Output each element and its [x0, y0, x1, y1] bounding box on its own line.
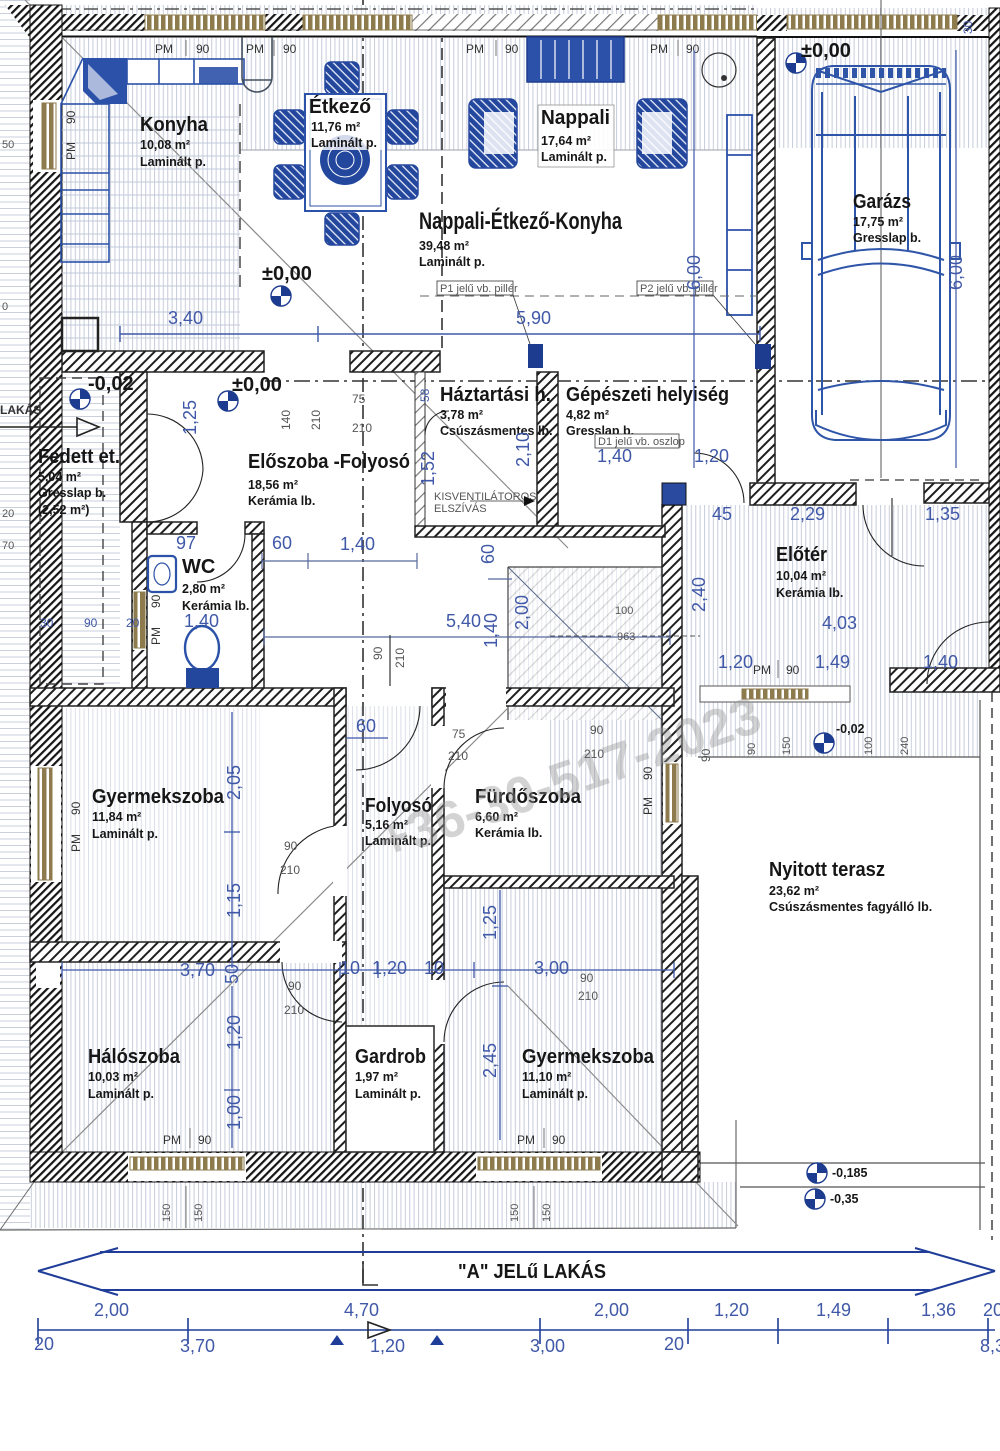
svg-text:20: 20 [664, 1334, 684, 1354]
svg-text:1,40: 1,40 [481, 613, 501, 648]
svg-text:150: 150 [509, 1204, 521, 1222]
svg-text:5,90: 5,90 [516, 308, 551, 328]
svg-text:Előszoba -Folyosó: Előszoba -Folyosó [248, 451, 410, 473]
svg-text:100: 100 [615, 605, 633, 617]
svg-text:240: 240 [899, 737, 911, 755]
svg-text:PM: PM [641, 797, 655, 815]
svg-text:97: 97 [176, 533, 196, 553]
svg-text:1,25: 1,25 [180, 400, 200, 435]
svg-text:Gardrob: Gardrob [355, 1046, 426, 1068]
svg-text:Kerámia lb.: Kerámia lb. [248, 494, 315, 508]
svg-text:90: 90 [552, 1133, 566, 1147]
svg-text:3,40: 3,40 [168, 308, 203, 328]
svg-text:Laminált p.: Laminált p. [541, 150, 607, 164]
svg-text:210: 210 [578, 989, 598, 1003]
svg-text:963: 963 [617, 631, 635, 643]
svg-text:1,40: 1,40 [184, 611, 219, 631]
svg-text:10,08 m²: 10,08 m² [140, 138, 190, 152]
svg-text:2,00: 2,00 [512, 595, 532, 630]
svg-text:±0,00: ±0,00 [262, 263, 312, 285]
svg-text:1,40: 1,40 [597, 446, 632, 466]
svg-text:3,78 m²: 3,78 m² [440, 408, 483, 422]
svg-text:90: 90 [371, 646, 385, 660]
svg-text:Laminált p.: Laminált p. [419, 255, 485, 269]
svg-text:90: 90 [284, 839, 298, 853]
svg-text:11,10 m²: 11,10 m² [522, 1070, 571, 1084]
svg-text:0: 0 [2, 301, 8, 313]
svg-text:PM: PM [753, 663, 771, 677]
svg-text:90: 90 [746, 743, 758, 755]
svg-text:2,80 m²: 2,80 m² [182, 582, 225, 596]
svg-text:17,75 m²: 17,75 m² [853, 215, 903, 229]
svg-text:ELSZÍVÁS: ELSZÍVÁS [434, 502, 487, 515]
svg-text:150: 150 [161, 1204, 173, 1222]
svg-text:23,62 m²: 23,62 m² [769, 884, 819, 898]
svg-text:90: 90 [84, 616, 98, 630]
svg-text:Laminált p.: Laminált p. [522, 1087, 588, 1101]
svg-text:210: 210 [309, 410, 323, 430]
svg-text:3,00: 3,00 [530, 1336, 565, 1356]
svg-text:20: 20 [126, 616, 140, 630]
svg-text:"A" JELű LAKÁS: "A" JELű LAKÁS [458, 1260, 606, 1283]
svg-text:90: 90 [149, 594, 163, 608]
svg-text:-0,02: -0,02 [836, 722, 865, 736]
svg-text:5,04 m²: 5,04 m² [38, 470, 81, 484]
svg-text:1,40: 1,40 [923, 652, 958, 672]
svg-text:90: 90 [686, 42, 700, 56]
svg-text:90: 90 [64, 110, 78, 124]
svg-text:-0,35: -0,35 [830, 1192, 859, 1206]
svg-text:±0,00: ±0,00 [801, 40, 851, 62]
svg-text:50: 50 [222, 964, 242, 984]
svg-text:210: 210 [584, 747, 604, 761]
svg-text:PM: PM [149, 627, 163, 645]
svg-text:4,70: 4,70 [344, 1300, 379, 1320]
svg-text:90: 90 [283, 42, 297, 56]
svg-text:4,03: 4,03 [822, 613, 857, 633]
svg-text:LAKÁS: LAKÁS [0, 402, 41, 417]
svg-text:±0,00: ±0,00 [232, 374, 282, 396]
svg-text:140: 140 [279, 410, 293, 430]
svg-text:90: 90 [198, 1133, 212, 1147]
svg-text:18,56 m²: 18,56 m² [248, 478, 298, 492]
svg-text:Gyermekszoba: Gyermekszoba [92, 786, 225, 808]
svg-text:10: 10 [340, 958, 360, 978]
svg-text:150: 150 [193, 1204, 205, 1222]
svg-text:2,45: 2,45 [480, 1043, 500, 1078]
svg-text:2,05: 2,05 [224, 765, 244, 800]
svg-text:210: 210 [352, 421, 372, 435]
svg-text:Csúszásmentes fagyálló lb.: Csúszásmentes fagyálló lb. [769, 900, 932, 914]
svg-text:1,35: 1,35 [925, 504, 960, 524]
svg-text:1,25: 1,25 [480, 905, 500, 940]
svg-text:60: 60 [272, 533, 292, 553]
svg-text:90: 90 [69, 801, 83, 815]
svg-text:Háztartási h.: Háztartási h. [440, 384, 551, 406]
svg-text:1,15: 1,15 [224, 883, 244, 918]
svg-text:90: 90 [196, 42, 210, 56]
svg-text:Gépészeti helyiség: Gépészeti helyiség [566, 384, 729, 406]
svg-text:20: 20 [34, 1334, 54, 1354]
svg-text:1,49: 1,49 [815, 652, 850, 672]
svg-text:3,70: 3,70 [180, 1336, 215, 1356]
svg-text:10,04 m²: 10,04 m² [776, 569, 826, 583]
svg-text:50: 50 [2, 139, 14, 151]
svg-text:Nappali: Nappali [541, 107, 610, 129]
svg-text:1,49: 1,49 [816, 1300, 851, 1320]
svg-text:90: 90 [590, 723, 604, 737]
svg-text:4,82 m²: 4,82 m² [566, 408, 609, 422]
svg-text:17,64 m²: 17,64 m² [541, 134, 591, 148]
svg-text:45: 45 [712, 504, 732, 524]
svg-text:1,40: 1,40 [340, 534, 375, 554]
svg-text:(2,52 m²): (2,52 m²) [38, 503, 89, 517]
svg-text:Előtér: Előtér [776, 544, 827, 566]
svg-text:1,00: 1,00 [224, 1095, 244, 1130]
svg-text:210: 210 [448, 749, 468, 763]
svg-text:8,3: 8,3 [980, 1336, 1000, 1356]
svg-text:1,20: 1,20 [714, 1300, 749, 1320]
svg-text:Laminált p.: Laminált p. [88, 1087, 154, 1101]
svg-text:2,00: 2,00 [94, 1300, 129, 1320]
svg-text:Csúszásmentes lb.: Csúszásmentes lb. [440, 424, 553, 438]
svg-text:90: 90 [505, 42, 519, 56]
svg-text:Konyha: Konyha [140, 114, 209, 136]
svg-text:60: 60 [356, 716, 376, 736]
svg-text:150: 150 [781, 737, 793, 755]
svg-text:58: 58 [418, 388, 432, 402]
svg-text:75: 75 [352, 392, 366, 406]
svg-text:PM: PM [64, 142, 78, 160]
svg-text:Nyitott terasz: Nyitott terasz [769, 859, 885, 881]
svg-text:10,03 m²: 10,03 m² [88, 1070, 138, 1084]
svg-text:Laminált p.: Laminált p. [355, 1087, 421, 1101]
svg-text:30: 30 [40, 616, 54, 630]
svg-text:1,20: 1,20 [370, 1336, 405, 1356]
svg-text:90: 90 [699, 748, 713, 762]
svg-text:1,20: 1,20 [718, 652, 753, 672]
svg-text:210: 210 [284, 1003, 304, 1017]
svg-text:PM: PM [246, 42, 264, 56]
svg-text:PM: PM [650, 42, 668, 56]
svg-text:30: 30 [961, 20, 975, 34]
svg-text:60: 60 [478, 544, 498, 564]
svg-text:Laminált p.: Laminált p. [311, 136, 377, 150]
svg-text:1,52: 1,52 [418, 451, 438, 486]
svg-text:Fedett et.: Fedett et. [38, 446, 120, 468]
svg-text:20: 20 [983, 1300, 1000, 1320]
svg-text:Gyermekszoba: Gyermekszoba [522, 1046, 655, 1068]
svg-text:WC: WC [182, 556, 215, 578]
svg-text:Laminált p.: Laminált p. [140, 155, 206, 169]
svg-text:PM: PM [69, 834, 83, 852]
svg-text:5,40: 5,40 [446, 611, 481, 631]
svg-text:P1 jelű vb. pillér: P1 jelű vb. pillér [440, 283, 518, 295]
svg-text:Étkező: Étkező [309, 95, 371, 118]
svg-text:100: 100 [863, 737, 875, 755]
svg-text:Laminált p.: Laminált p. [92, 827, 158, 841]
svg-text:75: 75 [452, 727, 466, 741]
svg-text:1,20: 1,20 [694, 446, 729, 466]
svg-text:2,10: 2,10 [513, 432, 533, 467]
svg-text:-0,02: -0,02 [88, 373, 134, 395]
svg-text:1,97 m²: 1,97 m² [355, 1070, 398, 1084]
svg-text:150: 150 [541, 1204, 553, 1222]
svg-text:2,00: 2,00 [594, 1300, 629, 1320]
svg-text:70: 70 [2, 540, 14, 552]
svg-text:11,76 m²: 11,76 m² [311, 120, 360, 134]
svg-text:Nappali-Étkező-Konyha: Nappali-Étkező-Konyha [419, 207, 622, 235]
svg-text:PM: PM [163, 1133, 181, 1147]
svg-text:39,48 m²: 39,48 m² [419, 239, 469, 253]
svg-text:1,36: 1,36 [921, 1300, 956, 1320]
svg-text:10: 10 [424, 958, 444, 978]
svg-text:PM: PM [155, 42, 173, 56]
svg-text:90: 90 [580, 971, 594, 985]
svg-text:-0,185: -0,185 [832, 1166, 867, 1180]
svg-text:11,84 m²: 11,84 m² [92, 810, 141, 824]
svg-text:PM: PM [517, 1133, 535, 1147]
svg-text:Garázs: Garázs [853, 191, 911, 213]
svg-text:P2 jelű vb. pillér: P2 jelű vb. pillér [640, 283, 718, 295]
svg-text:Hálószoba: Hálószoba [88, 1046, 181, 1068]
svg-text:2,40: 2,40 [689, 577, 709, 612]
svg-text:1,20: 1,20 [372, 958, 407, 978]
svg-text:210: 210 [280, 863, 300, 877]
svg-text:Gresslap b.: Gresslap b. [853, 231, 921, 245]
svg-text:90: 90 [786, 663, 800, 677]
svg-text:1,20: 1,20 [224, 1015, 244, 1050]
svg-text:210: 210 [393, 648, 407, 668]
svg-text:Gresslap b.: Gresslap b. [38, 486, 106, 500]
svg-text:Kerámia lb.: Kerámia lb. [776, 586, 843, 600]
svg-text:90: 90 [288, 979, 302, 993]
svg-text:3,00: 3,00 [534, 958, 569, 978]
svg-text:2,29: 2,29 [790, 504, 825, 524]
svg-text:20: 20 [2, 508, 14, 520]
svg-text:90: 90 [641, 766, 655, 780]
svg-text:PM: PM [466, 42, 484, 56]
